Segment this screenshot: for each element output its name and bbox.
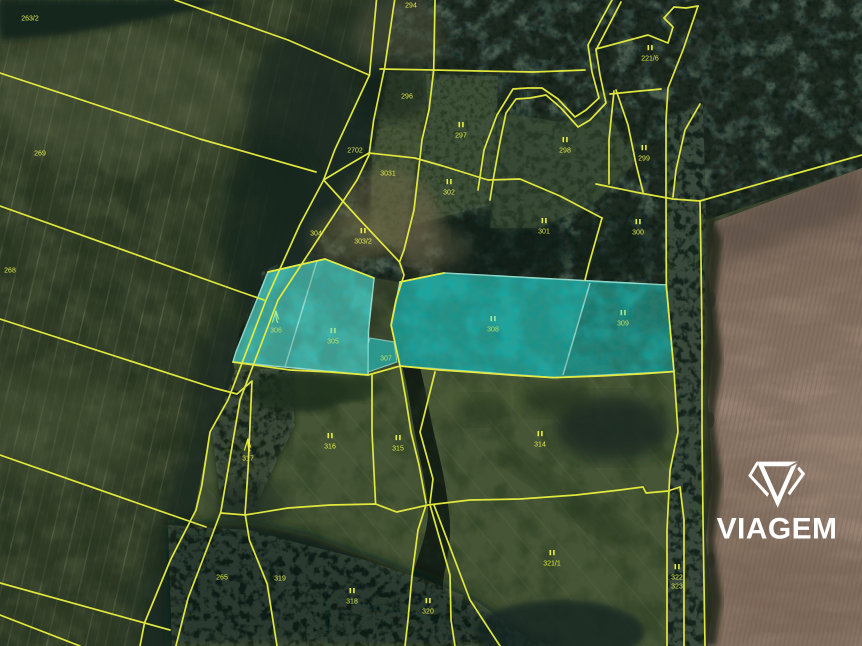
svg-text:303/2: 303/2: [354, 239, 372, 246]
svg-text:319: 319: [274, 576, 286, 583]
svg-text:VIAGEM: VIAGEM: [717, 513, 838, 546]
svg-text:322: 322: [671, 575, 683, 582]
svg-text:321/1: 321/1: [543, 561, 561, 568]
svg-text:314: 314: [534, 442, 546, 449]
svg-text:306: 306: [270, 328, 282, 335]
svg-text:265: 265: [216, 575, 228, 582]
svg-text:315: 315: [392, 446, 404, 453]
svg-text:304: 304: [310, 231, 322, 238]
svg-text:316: 316: [324, 444, 336, 451]
svg-text:268: 268: [4, 268, 16, 275]
svg-text:294: 294: [405, 3, 417, 10]
svg-text:309: 309: [617, 321, 629, 328]
svg-text:269: 269: [34, 151, 46, 158]
svg-text:2702: 2702: [347, 148, 363, 155]
svg-text:323: 323: [671, 584, 683, 591]
svg-text:318: 318: [346, 599, 358, 606]
svg-text:263/2: 263/2: [21, 16, 39, 23]
svg-text:221/6: 221/6: [641, 56, 659, 63]
svg-text:3031: 3031: [380, 171, 396, 178]
svg-text:307: 307: [380, 356, 392, 363]
svg-text:297: 297: [455, 133, 467, 140]
svg-text:299: 299: [638, 156, 650, 163]
svg-text:317: 317: [242, 456, 254, 463]
svg-text:305: 305: [327, 339, 339, 346]
svg-text:300: 300: [632, 230, 644, 237]
svg-text:320: 320: [422, 609, 434, 616]
svg-text:296: 296: [401, 94, 413, 101]
svg-text:302: 302: [443, 190, 455, 197]
svg-text:298: 298: [559, 148, 571, 155]
svg-text:301: 301: [538, 229, 550, 236]
svg-text:308: 308: [487, 327, 499, 334]
